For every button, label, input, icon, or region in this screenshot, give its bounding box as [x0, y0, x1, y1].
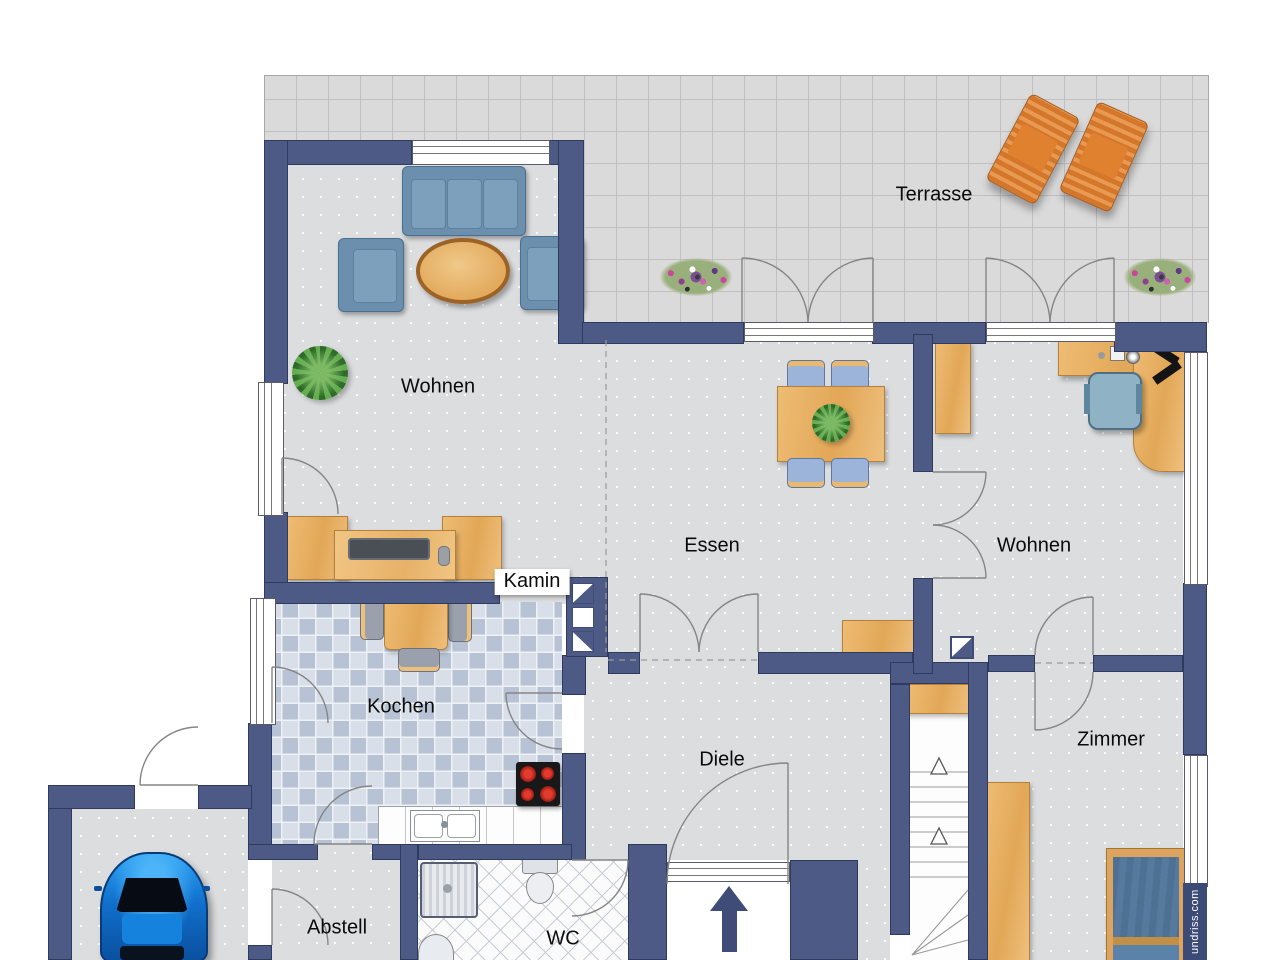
door-swings-and-stairs: [0, 0, 1280, 960]
room-label-kochen: Kochen: [367, 696, 435, 719]
room-label-abstell: Abstell: [307, 917, 367, 940]
room-label-essen: Essen: [684, 535, 740, 558]
entrance-arrow: [710, 886, 748, 911]
room-label-zimmer: Zimmer: [1077, 729, 1145, 752]
staircase: [910, 772, 968, 955]
room-label-wohnen-left: Wohnen: [401, 376, 475, 399]
door-arcs: [140, 258, 1114, 945]
stair-direction-arrows: [931, 758, 947, 844]
zone-divider-lines: [606, 340, 1093, 663]
room-label-terrasse: Terrasse: [896, 184, 973, 207]
room-label-kamin: Kamin: [495, 569, 570, 595]
entrance-arrow-shaft: [722, 910, 737, 952]
watermark: undriss.com: [1183, 883, 1207, 960]
floor-plan: Terrasse Wohnen Essen Wohnen Kamin Koche…: [0, 0, 1280, 960]
room-label-wohnen-right: Wohnen: [997, 535, 1071, 558]
room-label-wc: WC: [546, 928, 579, 951]
room-label-diele: Diele: [699, 749, 745, 772]
